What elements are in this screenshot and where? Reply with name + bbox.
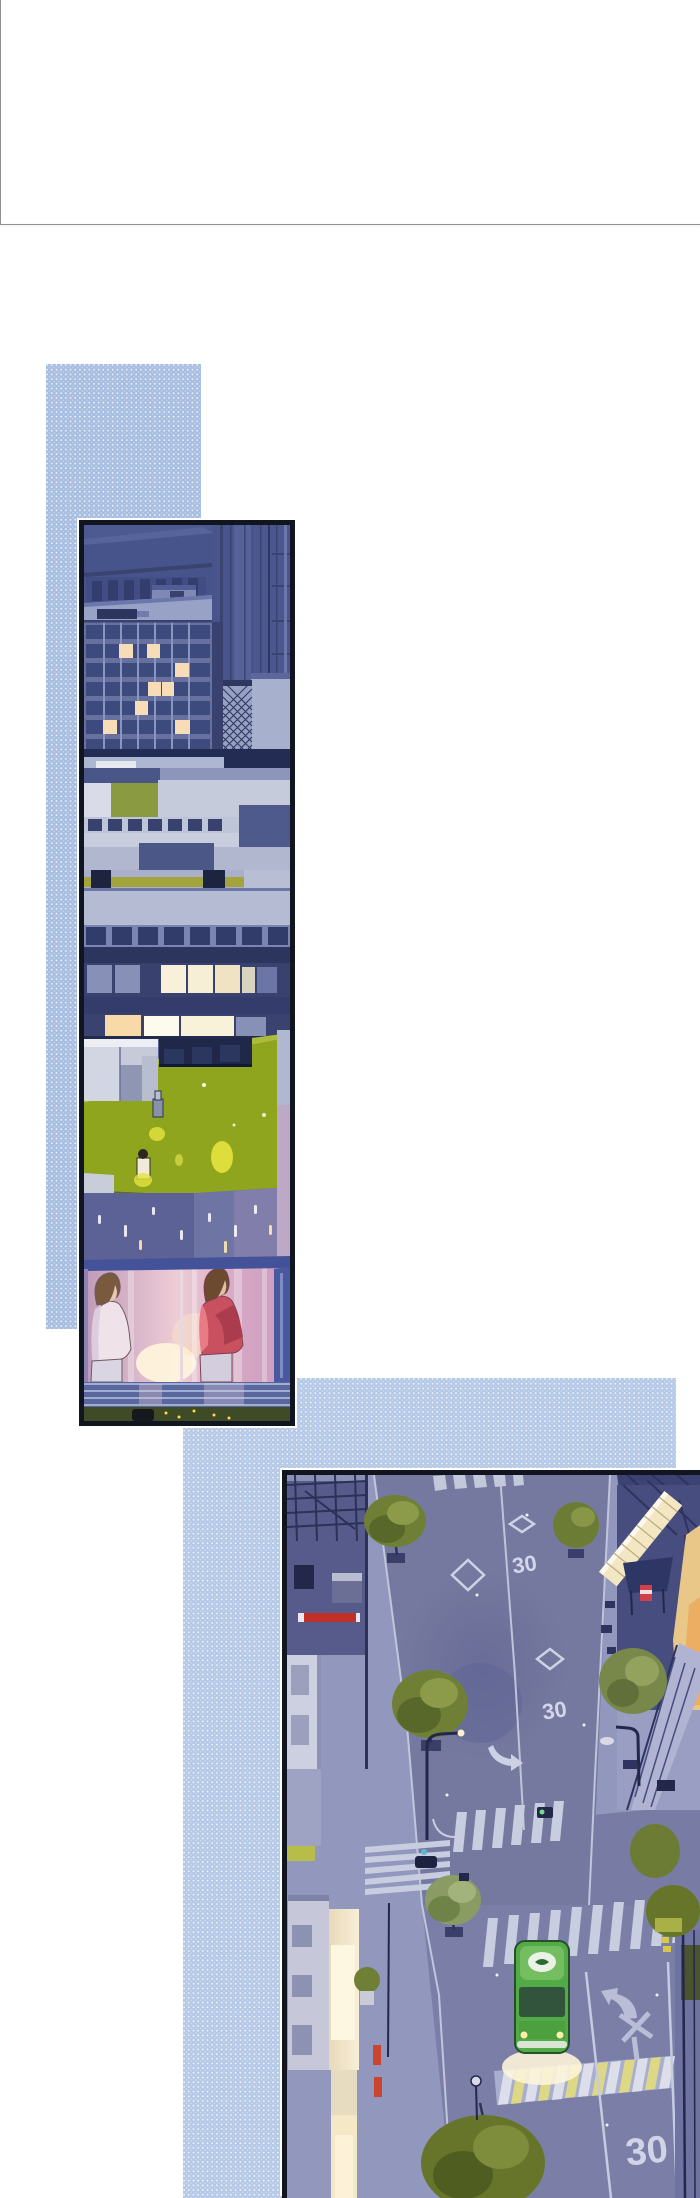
svg-text:30: 30 (510, 1550, 538, 1579)
svg-text:30: 30 (540, 1696, 568, 1725)
svg-text:30: 30 (624, 2128, 670, 2174)
